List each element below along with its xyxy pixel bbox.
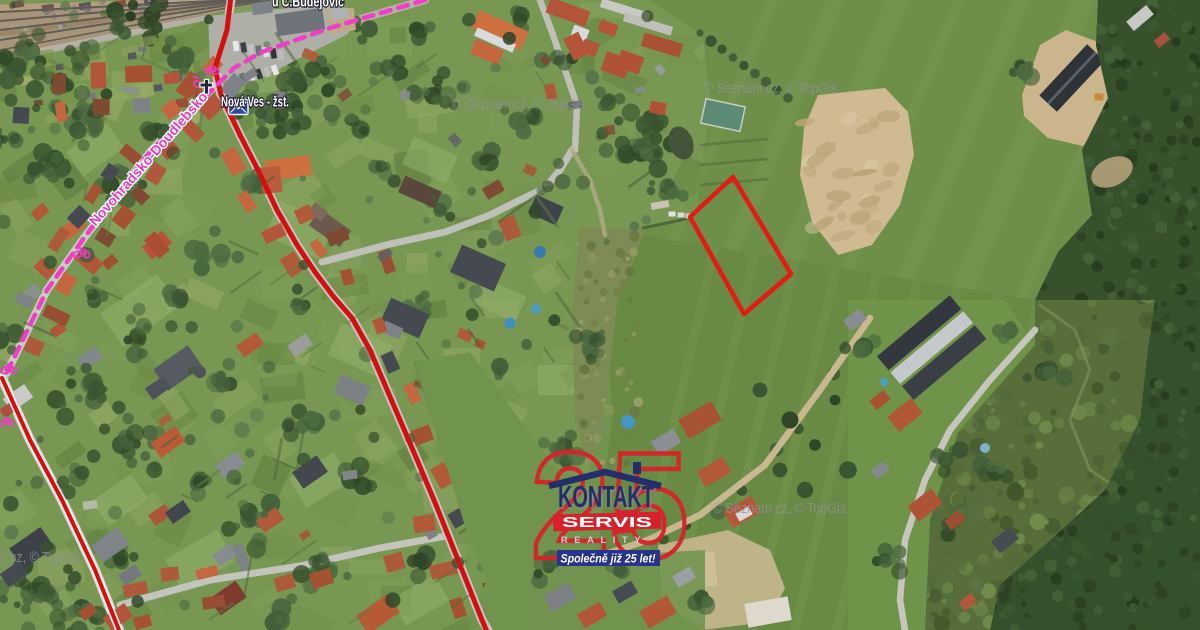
svg-text:u Č.Budějovic: u Č.Budějovic: [272, 0, 344, 11]
svg-text:© Seznam.cz, © TopGis: © Seznam.cz, © TopGis: [713, 501, 846, 517]
svg-text:© Seznam.cz, © TopGis: © Seznam.cz, © TopGis: [0, 550, 81, 566]
svg-text:© Seznam.cz, © TopGis: © Seznam.cz, © TopGis: [704, 81, 837, 97]
svg-text:Nová Ves - žst.: Nová Ves - žst.: [221, 94, 289, 111]
svg-text:REALITY: REALITY: [561, 535, 647, 546]
svg-text:SERVIS: SERVIS: [562, 514, 652, 531]
svg-text:Společně již 25 let!: Společně již 25 let!: [561, 552, 656, 566]
svg-text:© Seznam.cz, © TopGis: © Seznam.cz, © TopGis: [452, 97, 585, 113]
svg-text:KONTAKT: KONTAKT: [558, 479, 654, 514]
